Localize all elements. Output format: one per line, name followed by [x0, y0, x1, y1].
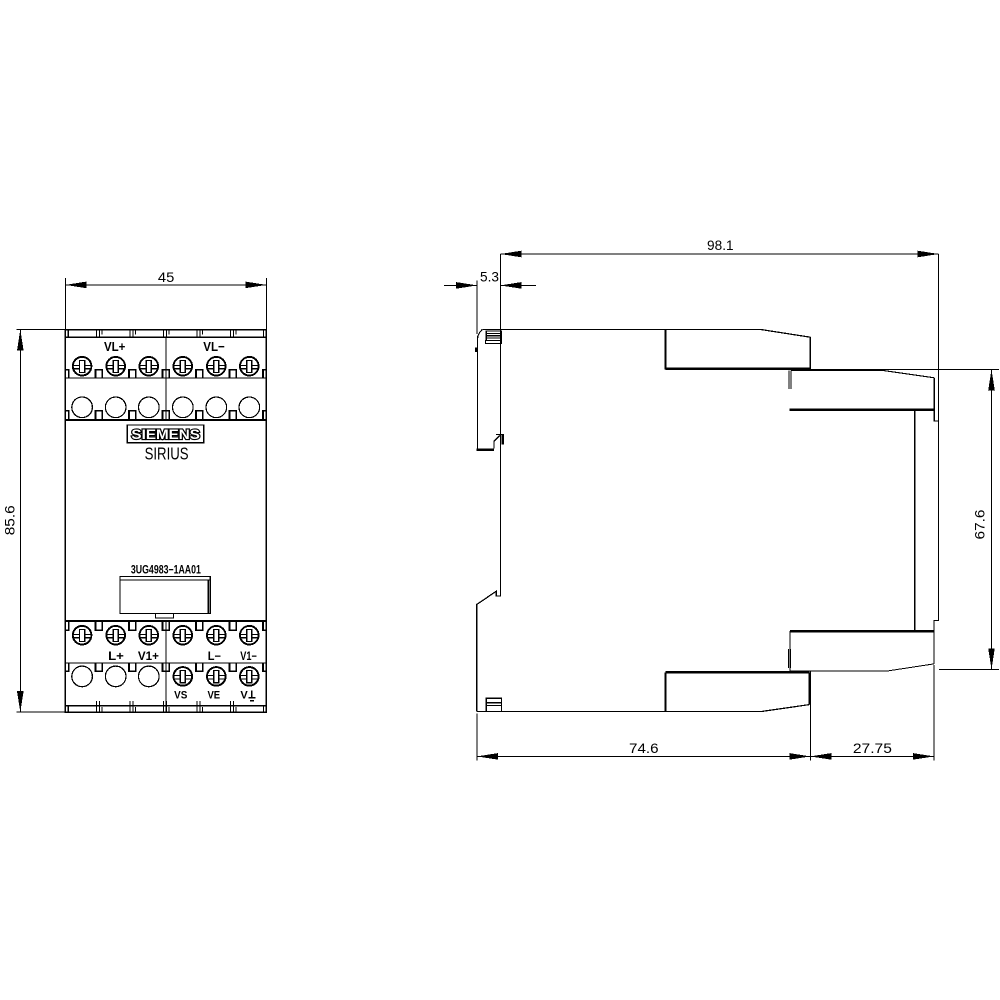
svg-text:74.6: 74.6 [629, 741, 659, 756]
svg-text:L−: L− [208, 651, 221, 663]
svg-text:85.6: 85.6 [3, 505, 18, 535]
svg-text:L+: L+ [108, 651, 124, 663]
svg-text:5.3: 5.3 [480, 269, 499, 284]
svg-text:V1−: V1− [240, 651, 257, 663]
svg-text:V1+: V1+ [138, 651, 159, 663]
svg-text:VS: VS [174, 690, 187, 702]
svg-text:SIRIUS: SIRIUS [145, 444, 189, 464]
svg-text:27.75: 27.75 [853, 741, 892, 756]
svg-text:VE: VE [207, 690, 220, 702]
svg-text:VL+: VL+ [104, 339, 126, 354]
svg-text:98.1: 98.1 [707, 238, 734, 253]
svg-text:67.6: 67.6 [973, 509, 988, 539]
svg-text:V: V [240, 690, 248, 702]
svg-text:SIEMENS: SIEMENS [131, 426, 200, 442]
svg-text:3UG4983−1AA01: 3UG4983−1AA01 [131, 564, 201, 576]
svg-text:45: 45 [158, 270, 175, 285]
svg-text:VL−: VL− [203, 339, 225, 354]
